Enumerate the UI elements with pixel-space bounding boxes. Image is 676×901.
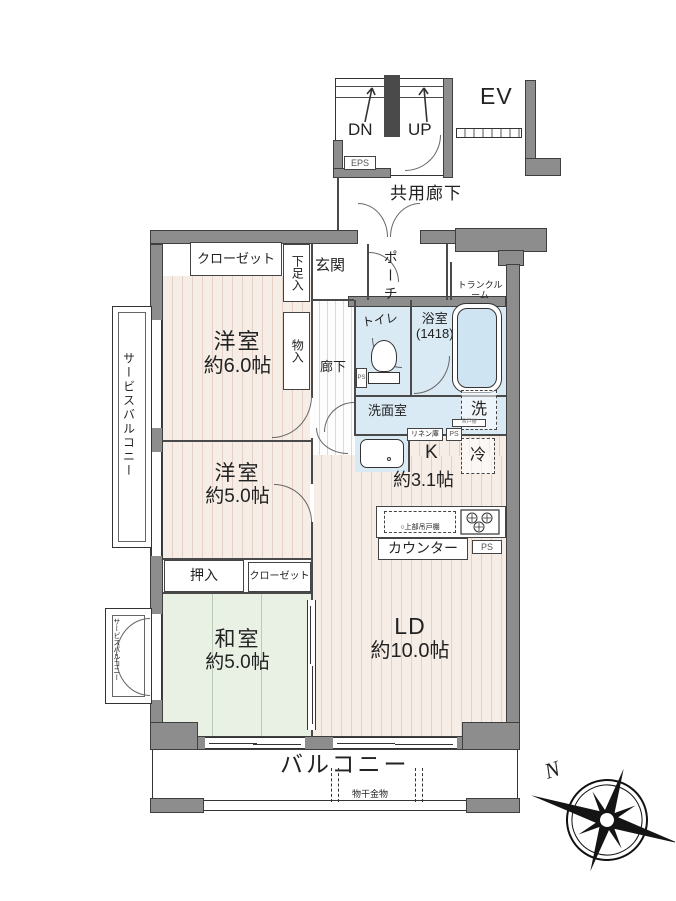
oshiire-box: 押入 <box>164 560 244 592</box>
porch-gate-arc-right <box>390 203 420 237</box>
basin-right-divider <box>408 436 410 472</box>
laundry-hook-right <box>415 768 423 802</box>
laundry-hook-left <box>331 768 339 802</box>
japanese-label: 和室 約5.0帖 <box>170 628 305 673</box>
shoebox-box: 下足入 <box>283 244 310 302</box>
stair-arrows-icon <box>335 78 445 126</box>
balcony-label: バルコニー <box>280 752 410 778</box>
fridge-box: 冷 <box>461 438 495 474</box>
japanese-balcony-window <box>205 737 305 749</box>
counter-label-box: カウンター <box>378 538 468 560</box>
balcony-rail-right-pillar <box>466 798 520 813</box>
western2-size: 約5.0帖 <box>205 486 269 507</box>
ps-box-counter: PS <box>472 540 502 554</box>
western1-label: 洋室 約6.0帖 <box>170 330 305 377</box>
genkan-hall-divider <box>312 299 354 301</box>
closet1-label: クローゼット <box>197 252 275 267</box>
washroom-label: 洗面室 <box>368 404 407 419</box>
trunk-left-wall <box>450 262 452 300</box>
bathtub <box>452 303 502 393</box>
tiny-shelf-box: 吊戸棚 <box>452 419 486 427</box>
ld-label: LD 約10.0帖 <box>330 614 490 662</box>
porch-right-wall <box>446 244 448 300</box>
service-balcony-2-label: サービスバルコニー <box>112 618 120 681</box>
shoebox-label: 下足入 <box>290 255 303 291</box>
japanese-name: 和室 <box>215 628 261 652</box>
western1-window <box>151 320 162 428</box>
ps-box-wash: PS <box>446 428 462 441</box>
trunk-room-label: トランクルーム <box>456 280 504 300</box>
washer-label: 洗 <box>471 401 487 419</box>
western1-size: 約6.0帖 <box>204 355 272 377</box>
service-balcony-1-label: サービスバルコニー <box>121 352 134 478</box>
closet1-box: クローゼット <box>190 242 282 276</box>
eps-label: EPS <box>351 158 369 168</box>
jp-top-divider <box>163 592 312 594</box>
washbasin-icon <box>360 439 404 468</box>
oshiire-label: 押入 <box>190 568 218 584</box>
tiny-shelf-label: 吊戸棚 <box>461 420 476 426</box>
japanese-window <box>151 614 162 700</box>
closet2-label: クローゼット <box>250 571 310 582</box>
toilet-ps-label: PS <box>357 375 365 382</box>
closet2-box: クローゼット <box>248 562 311 592</box>
japanese-size: 約5.0帖 <box>205 652 269 673</box>
counter-label: カウンター <box>388 541 458 557</box>
k-size-label: 約3.1帖 <box>393 470 454 490</box>
upper-cabinet-box: ○上部吊戸棚 <box>384 511 456 533</box>
balcony-rail-left-pillar <box>150 798 204 813</box>
right-wall <box>506 264 520 750</box>
washbasin-drain <box>387 457 391 461</box>
top-right-block <box>455 228 547 252</box>
western2-name: 洋室 <box>215 462 261 486</box>
bath-size: (1418) <box>416 327 454 342</box>
toilet-bath-divider <box>410 300 412 396</box>
floor-plan: DN UP EV EPS 共用廊下 <box>0 0 676 901</box>
hall-label: 廊下 <box>320 360 346 375</box>
ev-step-wall <box>525 158 561 176</box>
bathtub-inner <box>457 308 497 388</box>
bottom-left-pillar <box>150 722 198 750</box>
toilet-icon <box>371 340 397 372</box>
western2-window <box>151 452 162 556</box>
ld-size: 約10.0帖 <box>371 640 450 662</box>
stove-icon <box>460 509 500 535</box>
top-wall-mid <box>420 230 458 244</box>
ld-name: LD <box>394 614 425 640</box>
toilet-ps-box: PS <box>356 368 367 388</box>
ps-wash-label: PS <box>449 431 458 439</box>
w1-w2-divider <box>163 440 312 442</box>
toilet-tank <box>368 372 400 384</box>
bottom-right-pillar <box>462 722 520 750</box>
genkan-label: 玄関 <box>315 258 345 275</box>
stairs-down-label: DN <box>348 120 373 139</box>
k-name-label: K <box>425 442 438 463</box>
laundry-hardware-label: 物干金物 <box>352 789 388 799</box>
ev-door <box>456 128 522 138</box>
western2-label: 洋室 約5.0帖 <box>170 462 305 507</box>
upper-cabinet-label: ○上部吊戸棚 <box>400 524 439 532</box>
fridge-label: 冷 <box>470 447 486 465</box>
elevator-label: EV <box>480 84 513 110</box>
western1-name: 洋室 <box>213 330 261 355</box>
linen-label: リネン庫 <box>411 431 439 439</box>
common-corridor-wall-line <box>337 178 339 232</box>
porch-gate-arc-left <box>358 203 388 237</box>
common-corridor-label: 共用廊下 <box>390 184 462 203</box>
bath-name: 浴室 <box>416 312 454 327</box>
ld-balcony-window <box>333 737 457 749</box>
eps-box: EPS <box>344 156 376 170</box>
stair-right-wall <box>443 78 453 178</box>
japanese-sliding-doors <box>307 600 316 730</box>
porch-label: ポーチ <box>382 250 398 304</box>
ps-counter-label: PS <box>481 542 493 552</box>
ld-k-floor <box>312 455 506 736</box>
linen-box: リネン庫 <box>407 428 443 441</box>
bath-label: 浴室 (1418) <box>416 312 454 341</box>
